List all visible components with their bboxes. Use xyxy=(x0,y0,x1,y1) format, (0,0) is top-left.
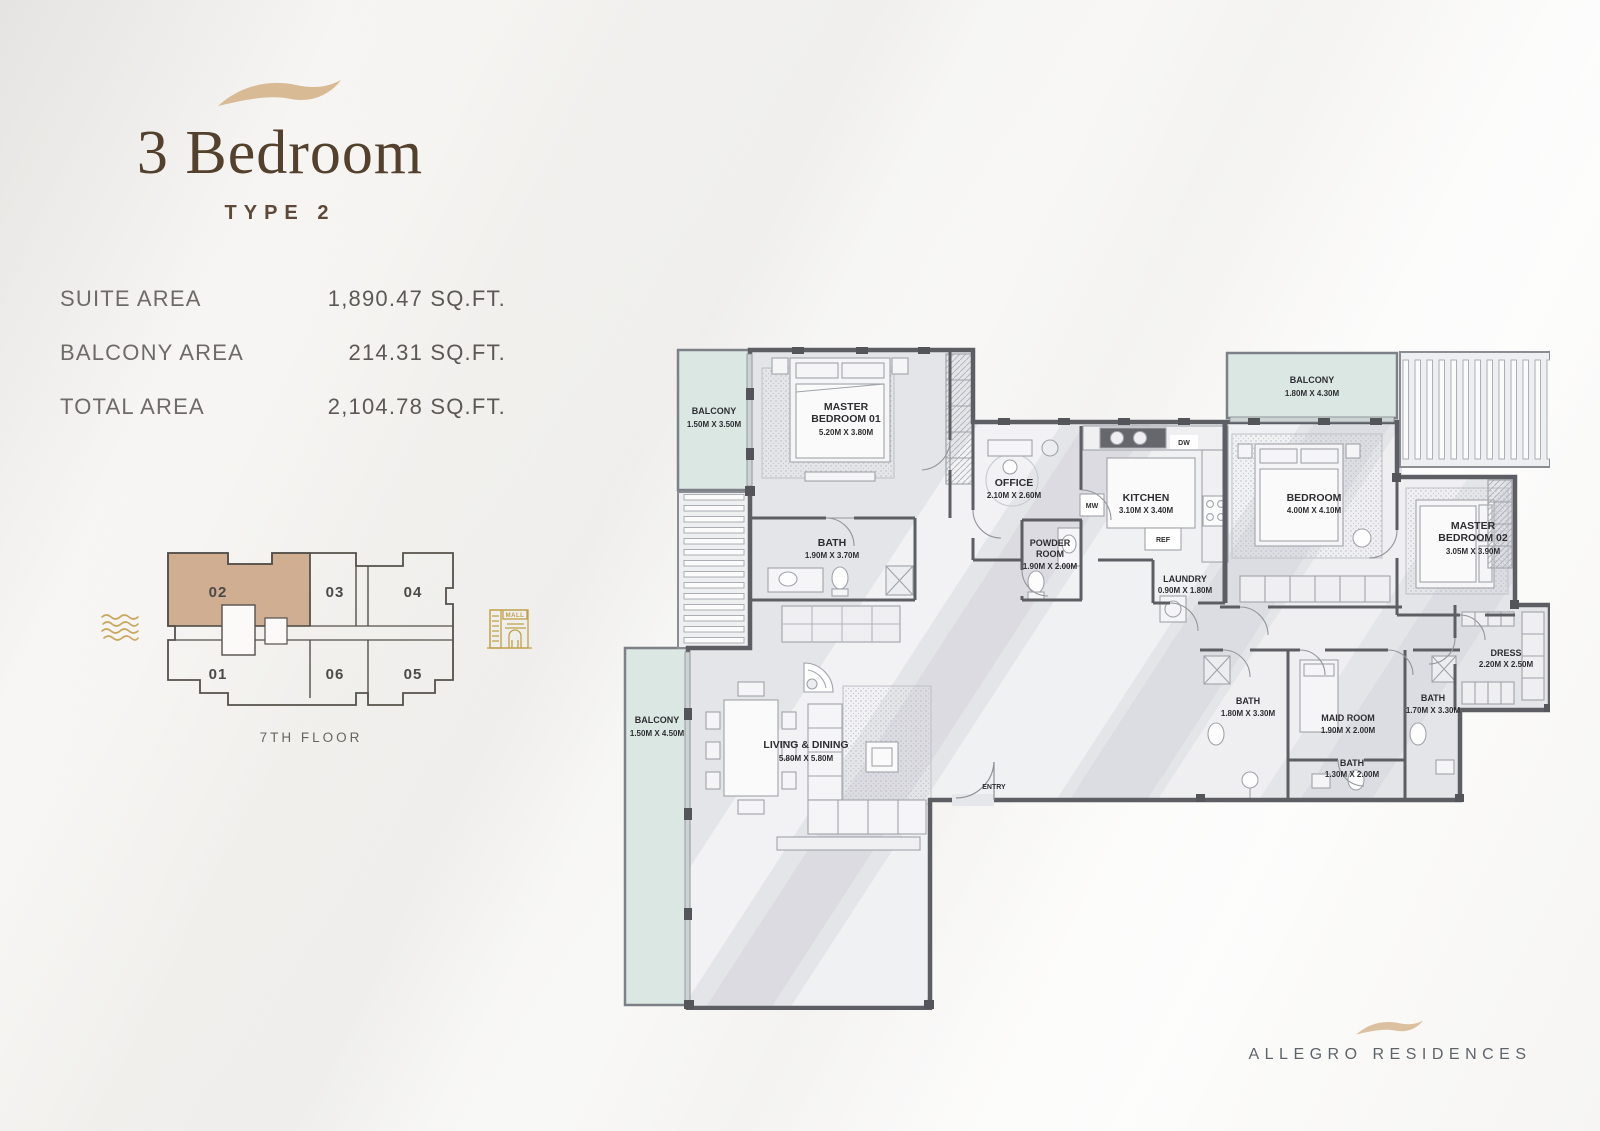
area-row-total: TOTAL AREA 2,104.78 SQ.FT. xyxy=(60,394,506,420)
svg-text:BEDROOM 01: BEDROOM 01 xyxy=(811,413,881,425)
svg-text:KITCHEN: KITCHEN xyxy=(1123,492,1170,504)
appliance-label-ref: REF xyxy=(1156,537,1171,544)
svg-text:1.80M X 4.30M: 1.80M X 4.30M xyxy=(1285,389,1340,398)
area-value: 2,104.78 SQ.FT. xyxy=(328,394,506,420)
laundry-machine-icon xyxy=(1160,596,1186,622)
svg-text:LAUNDRY: LAUNDRY xyxy=(1163,574,1207,584)
closet-bedroom-icon xyxy=(1240,576,1390,602)
svg-text:BALCONY: BALCONY xyxy=(1290,375,1335,385)
key-plan-core xyxy=(222,605,255,655)
svg-text:2.10M X 2.60M: 2.10M X 2.60M xyxy=(987,491,1042,500)
room-label-entry: ENTRY xyxy=(982,784,1006,791)
svg-text:5.20M X 3.80M: 5.20M X 3.80M xyxy=(819,428,874,437)
svg-text:1.90M X 2.00M: 1.90M X 2.00M xyxy=(1023,562,1078,571)
svg-text:1.30M X 2.00M: 1.30M X 2.00M xyxy=(1325,770,1380,779)
svg-text:1.80M X 3.30M: 1.80M X 3.30M xyxy=(1221,709,1276,718)
svg-text:2.20M X 2.50M: 2.20M X 2.50M xyxy=(1479,660,1534,669)
bath-master-01-fixtures-icon xyxy=(768,566,913,596)
svg-text:BALCONY: BALCONY xyxy=(635,715,680,725)
area-value: 214.31 SQ.FT. xyxy=(349,340,506,366)
svg-text:ROOM: ROOM xyxy=(1036,549,1064,559)
svg-text:1.90M X 2.00M: 1.90M X 2.00M xyxy=(1321,726,1376,735)
svg-text:OFFICE: OFFICE xyxy=(995,477,1034,489)
key-plan-floor-label: 7TH FLOOR xyxy=(165,730,457,745)
floor-plan: BALCONY 1.50M X 3.50M MASTER BEDROOM 01 … xyxy=(600,330,1550,1010)
svg-text:3.10M X 3.40M: 3.10M X 3.40M xyxy=(1119,506,1174,515)
svg-text:3.05M X 3.90M: 3.05M X 3.90M xyxy=(1446,547,1501,556)
mall-icon: MALL xyxy=(486,600,534,654)
svg-text:BALCONY: BALCONY xyxy=(692,406,737,416)
brand-swoosh-icon xyxy=(214,76,346,112)
appliance-label-dw: DW xyxy=(1178,440,1190,447)
area-table: SUITE AREA 1,890.47 SQ.FT. BALCONY AREA … xyxy=(60,286,506,448)
svg-text:1.50M X 4.50M: 1.50M X 4.50M xyxy=(630,729,685,738)
svg-text:BATH: BATH xyxy=(1421,693,1445,703)
mall-icon-label: MALL xyxy=(506,613,525,619)
svg-text:MASTER: MASTER xyxy=(824,401,869,413)
svg-text:5.80M X 5.80M: 5.80M X 5.80M xyxy=(779,754,834,763)
svg-text:1.50M X 3.50M: 1.50M X 3.50M xyxy=(687,420,742,429)
area-label: SUITE AREA xyxy=(60,286,202,312)
waves-icon xyxy=(100,612,144,644)
room-label-bedroom: BEDROOM 4.00M X 4.10M xyxy=(1287,492,1342,515)
key-plan: 02 03 04 01 06 05 xyxy=(165,548,457,714)
room-label-kitchen: KITCHEN 3.10M X 3.40M xyxy=(1119,492,1174,515)
key-plan-unit-label[interactable]: 01 xyxy=(209,666,228,683)
svg-text:1.70M X 3.30M: 1.70M X 3.30M xyxy=(1406,706,1461,715)
key-plan-unit-label[interactable]: 04 xyxy=(404,584,423,601)
svg-text:0.90M X 1.80M: 0.90M X 1.80M xyxy=(1158,586,1213,595)
svg-text:DRESS: DRESS xyxy=(1490,648,1521,658)
area-label: BALCONY AREA xyxy=(60,340,244,366)
svg-text:MASTER: MASTER xyxy=(1451,520,1496,532)
svg-text:LIVING & DINING: LIVING & DINING xyxy=(763,739,848,751)
key-plan-unit-label[interactable]: 06 xyxy=(326,666,345,683)
brochure-page: 3 Bedroom TYPE 2 SUITE AREA 1,890.47 SQ.… xyxy=(0,0,1600,1131)
key-plan-core-jog xyxy=(265,618,287,644)
appliance-label-mw: MW xyxy=(1086,503,1099,510)
svg-text:1.90M X 3.70M: 1.90M X 3.70M xyxy=(805,551,860,560)
area-row-balcony: BALCONY AREA 214.31 SQ.FT. xyxy=(60,340,506,366)
svg-text:BATH: BATH xyxy=(1236,696,1260,706)
svg-text:POWDER: POWDER xyxy=(1030,538,1071,548)
area-value: 1,890.47 SQ.FT. xyxy=(328,286,506,312)
unit-title: 3 Bedroom xyxy=(0,118,560,189)
footer-swoosh-icon xyxy=(1354,1018,1426,1038)
svg-text:4.00M X 4.10M: 4.00M X 4.10M xyxy=(1287,506,1342,515)
area-row-suite: SUITE AREA 1,890.47 SQ.FT. xyxy=(60,286,506,312)
svg-text:MAID ROOM: MAID ROOM xyxy=(1321,713,1375,723)
key-plan-unit-label[interactable]: 03 xyxy=(326,584,345,601)
svg-text:BATH: BATH xyxy=(1340,758,1364,768)
svg-text:BEDROOM: BEDROOM xyxy=(1287,492,1342,504)
svg-text:BEDROOM 02: BEDROOM 02 xyxy=(1438,532,1508,544)
key-plan-unit-label[interactable]: 05 xyxy=(404,666,423,683)
key-plan-corridor xyxy=(168,626,453,640)
entry-opening xyxy=(952,794,994,806)
svg-text:BATH: BATH xyxy=(818,537,846,549)
brand-footer: ALLEGRO RESIDENCES xyxy=(1240,1046,1540,1064)
area-label: TOTAL AREA xyxy=(60,394,205,420)
key-plan-unit-label[interactable]: 02 xyxy=(209,584,228,601)
unit-type: TYPE 2 xyxy=(0,202,560,225)
